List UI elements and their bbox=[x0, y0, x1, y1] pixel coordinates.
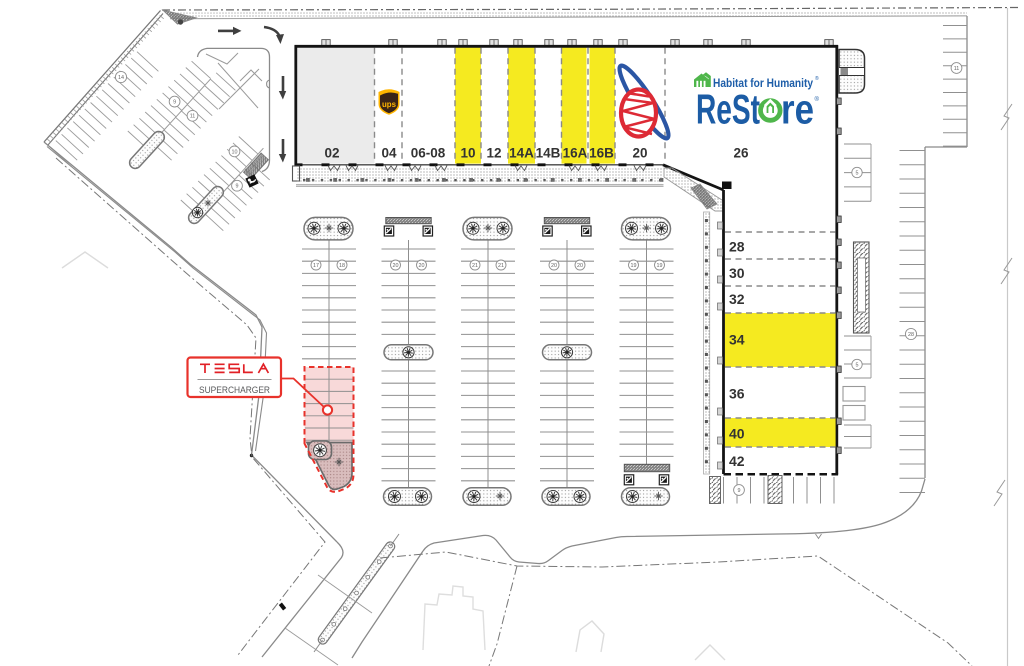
svg-text:26: 26 bbox=[733, 146, 749, 161]
svg-text:28: 28 bbox=[908, 332, 914, 338]
svg-text:re: re bbox=[781, 86, 814, 133]
svg-text:02: 02 bbox=[324, 146, 339, 161]
svg-text:17: 17 bbox=[313, 263, 319, 269]
svg-text:12: 12 bbox=[486, 146, 501, 161]
svg-text:30: 30 bbox=[729, 265, 745, 281]
svg-text:5: 5 bbox=[856, 362, 859, 368]
svg-text:20: 20 bbox=[419, 263, 425, 269]
svg-text:20: 20 bbox=[551, 263, 557, 269]
svg-text:18: 18 bbox=[339, 263, 345, 269]
svg-text:14B: 14B bbox=[536, 146, 561, 161]
svg-text:36: 36 bbox=[729, 386, 745, 402]
svg-text:32: 32 bbox=[729, 291, 745, 307]
svg-text:9: 9 bbox=[738, 488, 741, 494]
svg-text:28: 28 bbox=[729, 239, 745, 255]
svg-text:19: 19 bbox=[657, 263, 663, 269]
svg-text:9: 9 bbox=[236, 184, 239, 190]
svg-text:11: 11 bbox=[954, 66, 960, 72]
svg-text:5: 5 bbox=[856, 170, 859, 176]
svg-text:10: 10 bbox=[232, 149, 238, 155]
svg-text:SUPERCHARGER: SUPERCHARGER bbox=[199, 385, 270, 395]
svg-text:20: 20 bbox=[393, 263, 399, 269]
svg-text:10: 10 bbox=[460, 146, 475, 161]
svg-text:11: 11 bbox=[190, 114, 196, 120]
svg-text:21: 21 bbox=[498, 263, 504, 269]
svg-text:16B: 16B bbox=[589, 146, 614, 161]
svg-text:19: 19 bbox=[631, 263, 637, 269]
svg-text:16A: 16A bbox=[563, 146, 588, 161]
svg-text:20: 20 bbox=[632, 146, 647, 161]
svg-text:ReSt: ReSt bbox=[696, 86, 760, 133]
svg-text:®: ® bbox=[815, 75, 819, 82]
svg-text:34: 34 bbox=[729, 332, 745, 348]
svg-text:ups: ups bbox=[382, 99, 396, 109]
svg-text:14A: 14A bbox=[509, 146, 534, 161]
svg-text:9: 9 bbox=[173, 100, 176, 106]
svg-text:06-08: 06-08 bbox=[411, 146, 446, 161]
svg-text:20: 20 bbox=[577, 263, 583, 269]
svg-text:04: 04 bbox=[381, 146, 397, 161]
svg-text:40: 40 bbox=[729, 426, 745, 442]
svg-text:®: ® bbox=[815, 96, 820, 103]
svg-text:14: 14 bbox=[118, 75, 124, 81]
svg-text:21: 21 bbox=[472, 263, 478, 269]
svg-text:42: 42 bbox=[729, 453, 745, 469]
